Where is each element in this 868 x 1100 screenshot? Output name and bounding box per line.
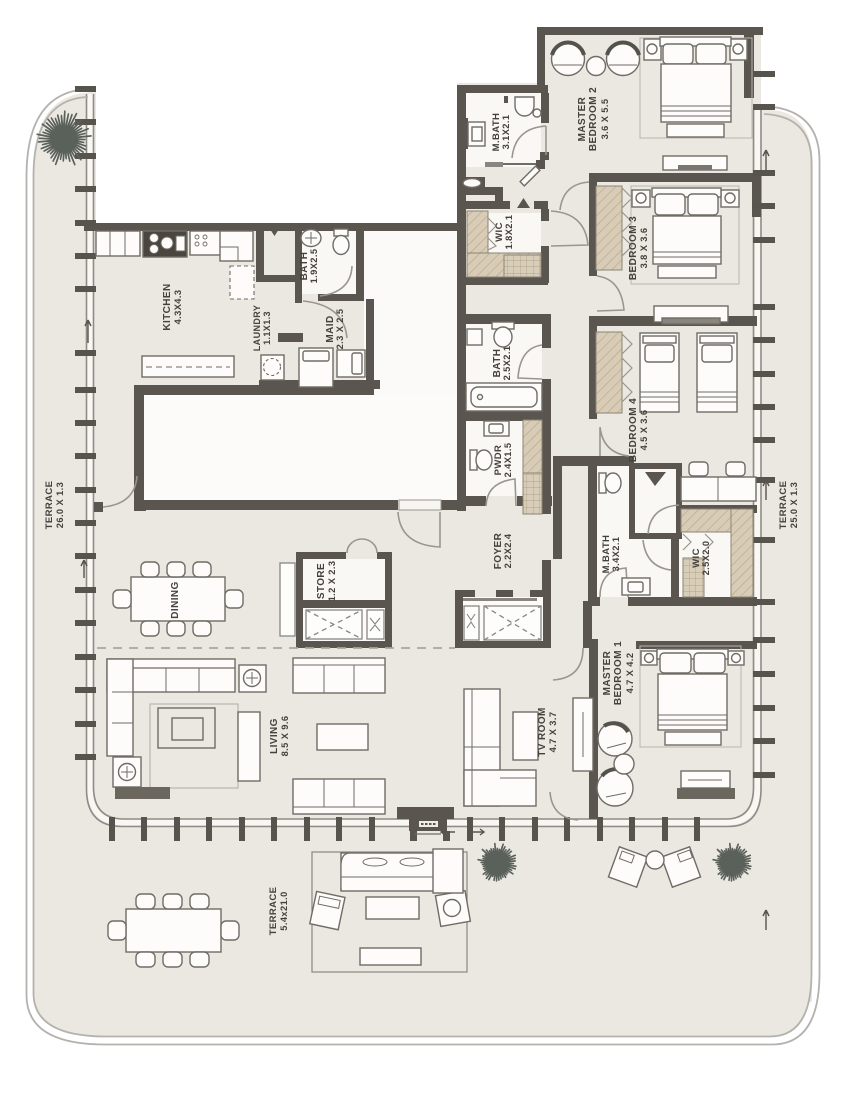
svg-text:DINING: DINING <box>170 581 181 618</box>
svg-text:4.5 X 3.6: 4.5 X 3.6 <box>639 410 649 451</box>
svg-text:4.7 X 4.2: 4.7 X 4.2 <box>625 653 635 694</box>
svg-text:BEDROOM 2: BEDROOM 2 <box>588 87 599 151</box>
svg-text:26.0 X 1.3: 26.0 X 1.3 <box>55 482 65 528</box>
svg-text:2.3 X 2.5: 2.3 X 2.5 <box>335 309 345 350</box>
svg-text:BEDROOM 4: BEDROOM 4 <box>628 398 639 462</box>
svg-text:BEDROOM 1: BEDROOM 1 <box>613 641 624 705</box>
svg-text:3.8 X 3.6: 3.8 X 3.6 <box>639 228 649 269</box>
svg-text:2.4X1.5: 2.4X1.5 <box>503 443 513 478</box>
svg-text:1.1X1.3: 1.1X1.3 <box>262 311 272 345</box>
svg-text:LIVING: LIVING <box>269 718 280 754</box>
svg-text:MASTER: MASTER <box>577 96 588 141</box>
svg-text:25.0 X 1.3: 25.0 X 1.3 <box>789 482 799 528</box>
svg-text:1.2 X 2.3: 1.2 X 2.3 <box>327 561 337 602</box>
svg-text:4.3X4.3: 4.3X4.3 <box>173 290 183 325</box>
svg-text:4.7 X 3.7: 4.7 X 3.7 <box>548 712 558 753</box>
svg-text:3.4X2.1: 3.4X2.1 <box>611 537 621 572</box>
svg-text:3.6 X 5.5: 3.6 X 5.5 <box>600 99 610 140</box>
svg-text:KITCHEN: KITCHEN <box>162 283 173 330</box>
svg-text:STORE: STORE <box>316 563 327 599</box>
svg-text:1.8X2.1: 1.8X2.1 <box>504 215 514 250</box>
svg-text:2.2X2.4: 2.2X2.4 <box>503 533 513 568</box>
svg-text:TERRACE: TERRACE <box>778 481 789 530</box>
svg-text:2.5X2.0: 2.5X2.0 <box>701 541 711 576</box>
svg-text:3.1X2.1: 3.1X2.1 <box>501 115 511 150</box>
svg-text:LAUNDRY: LAUNDRY <box>252 305 262 351</box>
svg-text:TV ROOM: TV ROOM <box>537 707 548 756</box>
svg-text:TERRACE: TERRACE <box>268 887 279 936</box>
svg-text:BEDROOM 3: BEDROOM 3 <box>628 216 639 280</box>
svg-text:TERRACE: TERRACE <box>44 481 55 530</box>
svg-text:8.5 X 9.6: 8.5 X 9.6 <box>280 716 290 757</box>
svg-text:5.4x21.0: 5.4x21.0 <box>279 891 289 930</box>
svg-text:2.5X2.1: 2.5X2.1 <box>502 346 512 381</box>
svg-text:MASTER: MASTER <box>602 650 613 695</box>
svg-text:1.9X2.5: 1.9X2.5 <box>309 249 319 284</box>
